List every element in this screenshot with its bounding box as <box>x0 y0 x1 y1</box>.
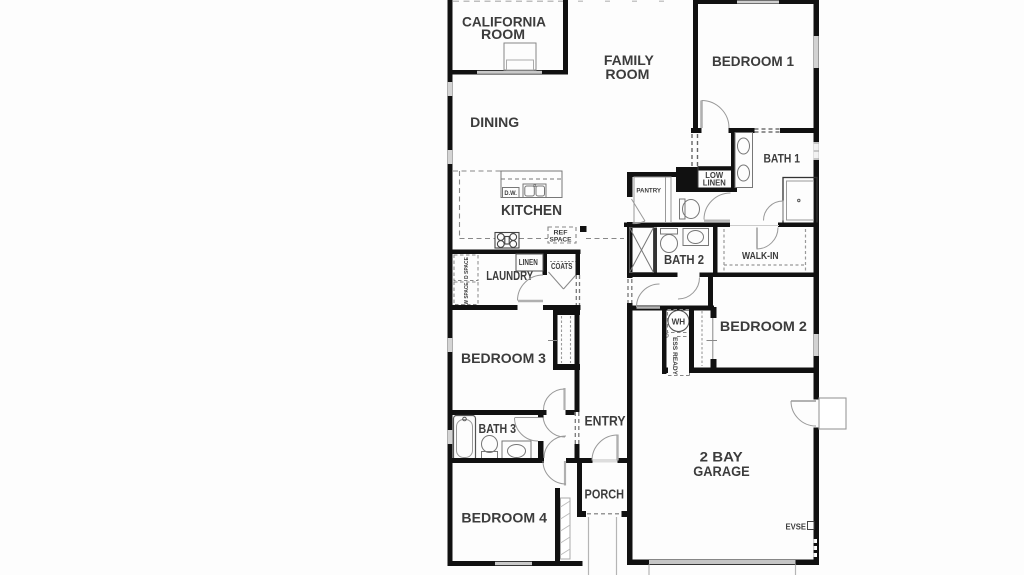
svg-text:WH: WH <box>672 317 686 326</box>
svg-text:REF: REF <box>554 230 568 237</box>
svg-text:BATH 1: BATH 1 <box>763 153 800 165</box>
svg-text:D SPACE: D SPACE <box>464 257 470 279</box>
svg-text:COATS: COATS <box>551 262 573 271</box>
svg-text:ENTRY: ENTRY <box>585 413 627 429</box>
svg-text:BATH 3: BATH 3 <box>479 422 517 436</box>
svg-text:KITCHEN: KITCHEN <box>501 203 562 219</box>
svg-text:ESS READY: ESS READY <box>671 337 678 376</box>
svg-text:GARAGE: GARAGE <box>693 464 750 479</box>
svg-text:PANTRY: PANTRY <box>636 187 661 194</box>
svg-text:EVSE: EVSE <box>786 522 807 531</box>
svg-text:BEDROOM 3: BEDROOM 3 <box>461 350 546 366</box>
svg-text:BEDROOM 2: BEDROOM 2 <box>720 318 807 334</box>
svg-text:BEDROOM 4: BEDROOM 4 <box>461 510 547 526</box>
svg-text:LINEN: LINEN <box>703 179 726 188</box>
svg-text:ROOM: ROOM <box>481 26 525 42</box>
svg-text:DINING: DINING <box>470 114 519 130</box>
svg-text:BATH 2: BATH 2 <box>664 252 704 267</box>
svg-text:ROOM: ROOM <box>605 66 649 82</box>
svg-text:W SPACE: W SPACE <box>464 282 470 304</box>
svg-text:D.W.: D.W. <box>504 190 517 197</box>
svg-text:SPACE: SPACE <box>550 237 573 244</box>
svg-text:PORCH: PORCH <box>585 487 625 501</box>
svg-text:BEDROOM 1: BEDROOM 1 <box>712 53 794 69</box>
svg-text:LINEN: LINEN <box>519 257 538 267</box>
svg-text:2 BAY: 2 BAY <box>700 449 743 464</box>
svg-text:WALK-IN: WALK-IN <box>742 251 779 262</box>
